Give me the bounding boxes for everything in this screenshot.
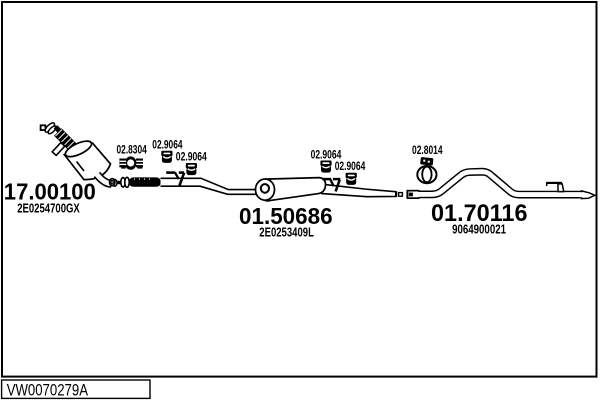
svg-text:02.9064: 02.9064 xyxy=(176,150,207,164)
svg-text:VW0070279A: VW0070279A xyxy=(7,381,88,399)
svg-text:2E0254700GX: 2E0254700GX xyxy=(17,202,80,216)
svg-text:2E0253409L: 2E0253409L xyxy=(259,225,314,239)
svg-text:02.9064: 02.9064 xyxy=(335,159,366,173)
svg-text:02.8304: 02.8304 xyxy=(117,142,147,156)
svg-text:02.8014: 02.8014 xyxy=(412,143,443,157)
svg-text:9064900021: 9064900021 xyxy=(452,223,506,237)
